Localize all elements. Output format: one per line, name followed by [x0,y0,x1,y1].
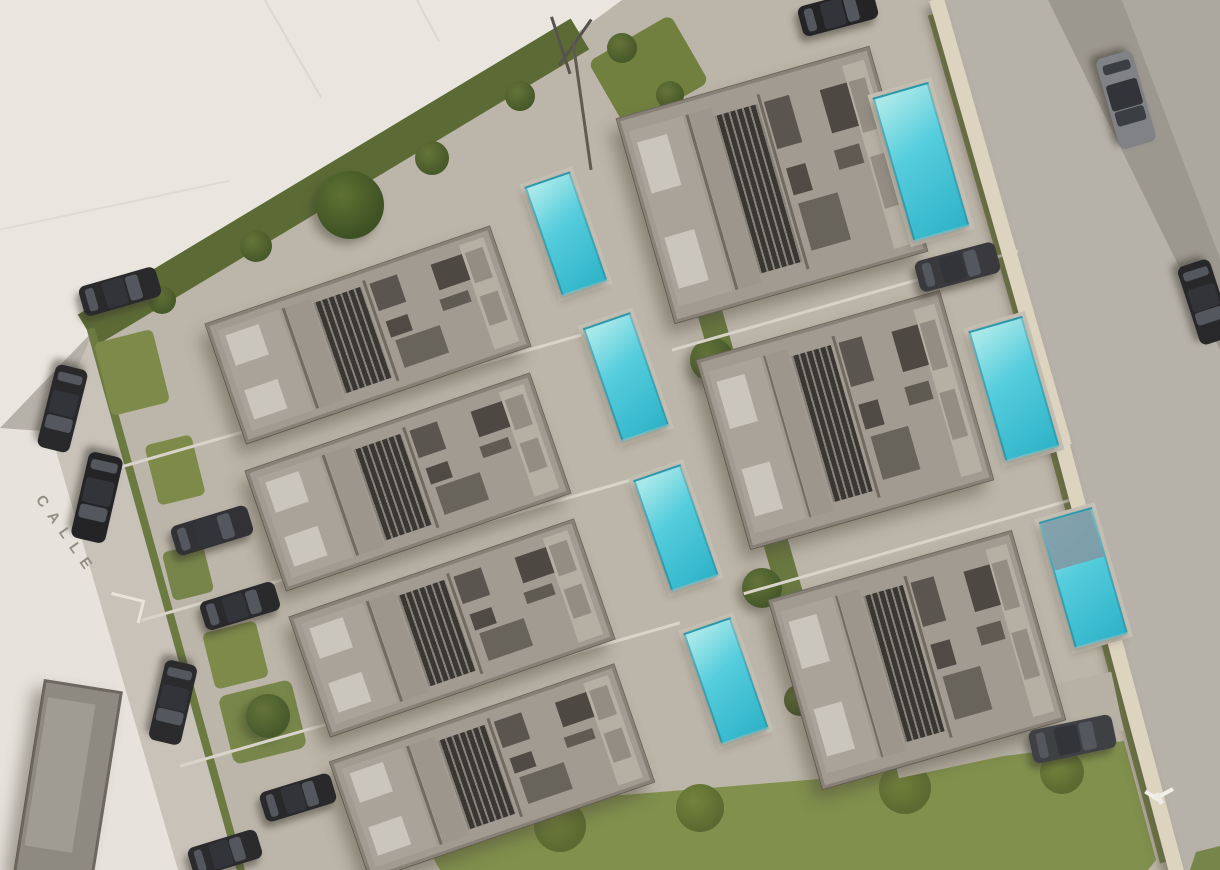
tree-large [316,171,384,239]
coffee-table [977,620,1006,645]
kitchen-island [858,399,884,430]
pool-cover [1041,509,1103,570]
rear-window-shape [84,287,99,312]
kitchen-island [786,163,814,196]
rear-window-shape [90,458,118,473]
coffee-table [905,380,934,405]
coffee-table [834,143,864,170]
shrub [240,230,272,262]
aerial-site-render: CALLE [0,0,1220,870]
shrub [415,141,449,175]
rear-window-shape [205,602,220,626]
dining-table [870,426,920,481]
kitchen-island [469,607,497,631]
coffee-table [564,728,596,749]
rear-window-shape [167,666,193,680]
lawn-shrub [676,784,724,832]
rear-window-shape [193,849,207,870]
coffee-table [524,584,556,605]
coffee-table [440,291,472,312]
rear-window-shape [1101,58,1132,76]
kitchen-block [369,274,406,311]
tree [246,694,290,738]
car-roof-shape [158,683,190,712]
rear-window-shape [176,526,191,551]
kitchen-block [453,567,490,604]
rear-window-shape [803,7,817,32]
kitchen-island [930,639,956,670]
rear-window-shape [920,262,935,288]
coffee-table [480,438,512,459]
dining-table [798,192,851,251]
rear-window-shape [1034,732,1049,759]
shrub [505,81,535,111]
car-roof-shape [47,388,80,418]
kitchen-block [409,421,446,458]
dining-table [942,666,992,721]
kitchen-island [425,461,453,485]
rear-window-shape [1182,265,1209,282]
kitchen-island [509,751,537,774]
kitchen-island [385,314,413,338]
rear-window-shape [56,370,83,385]
car-roof-shape [937,252,966,284]
car-roof-shape [81,477,115,508]
rear-window-shape [265,792,280,817]
car-roof-shape [1052,724,1081,757]
shrub [607,33,637,63]
kitchen-block [493,712,530,748]
